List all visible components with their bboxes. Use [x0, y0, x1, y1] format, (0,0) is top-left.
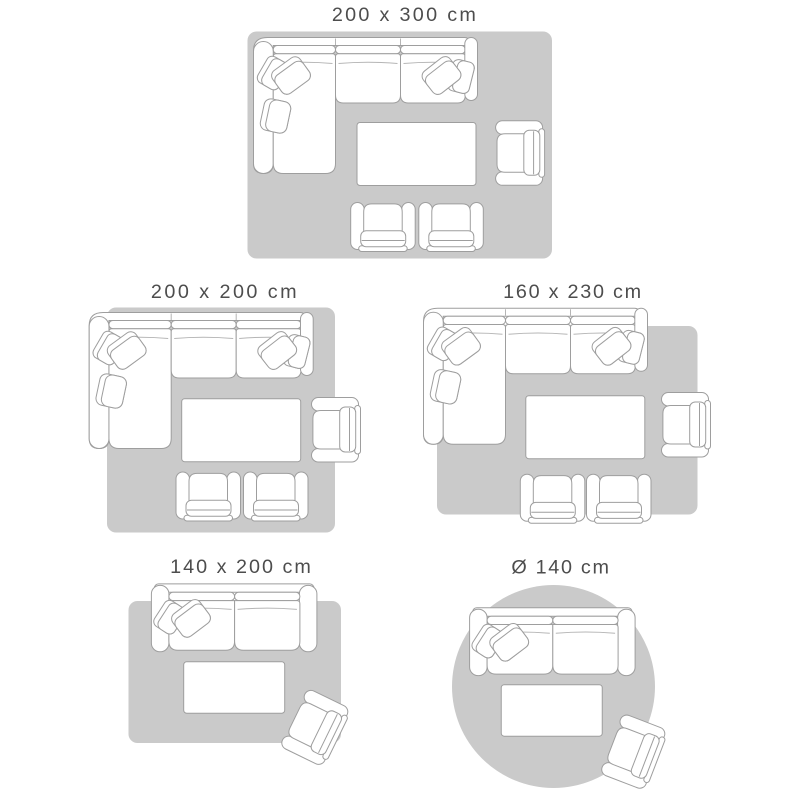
svg-text:160 x 230 cm: 160 x 230 cm	[503, 281, 643, 303]
svg-text:200 x 300 cm: 200 x 300 cm	[332, 4, 478, 26]
svg-text:200 x 200 cm: 200 x 200 cm	[151, 281, 299, 303]
svg-text:Ø 140 cm: Ø 140 cm	[511, 557, 610, 579]
svg-text:140 x 200 cm: 140 x 200 cm	[170, 556, 313, 578]
